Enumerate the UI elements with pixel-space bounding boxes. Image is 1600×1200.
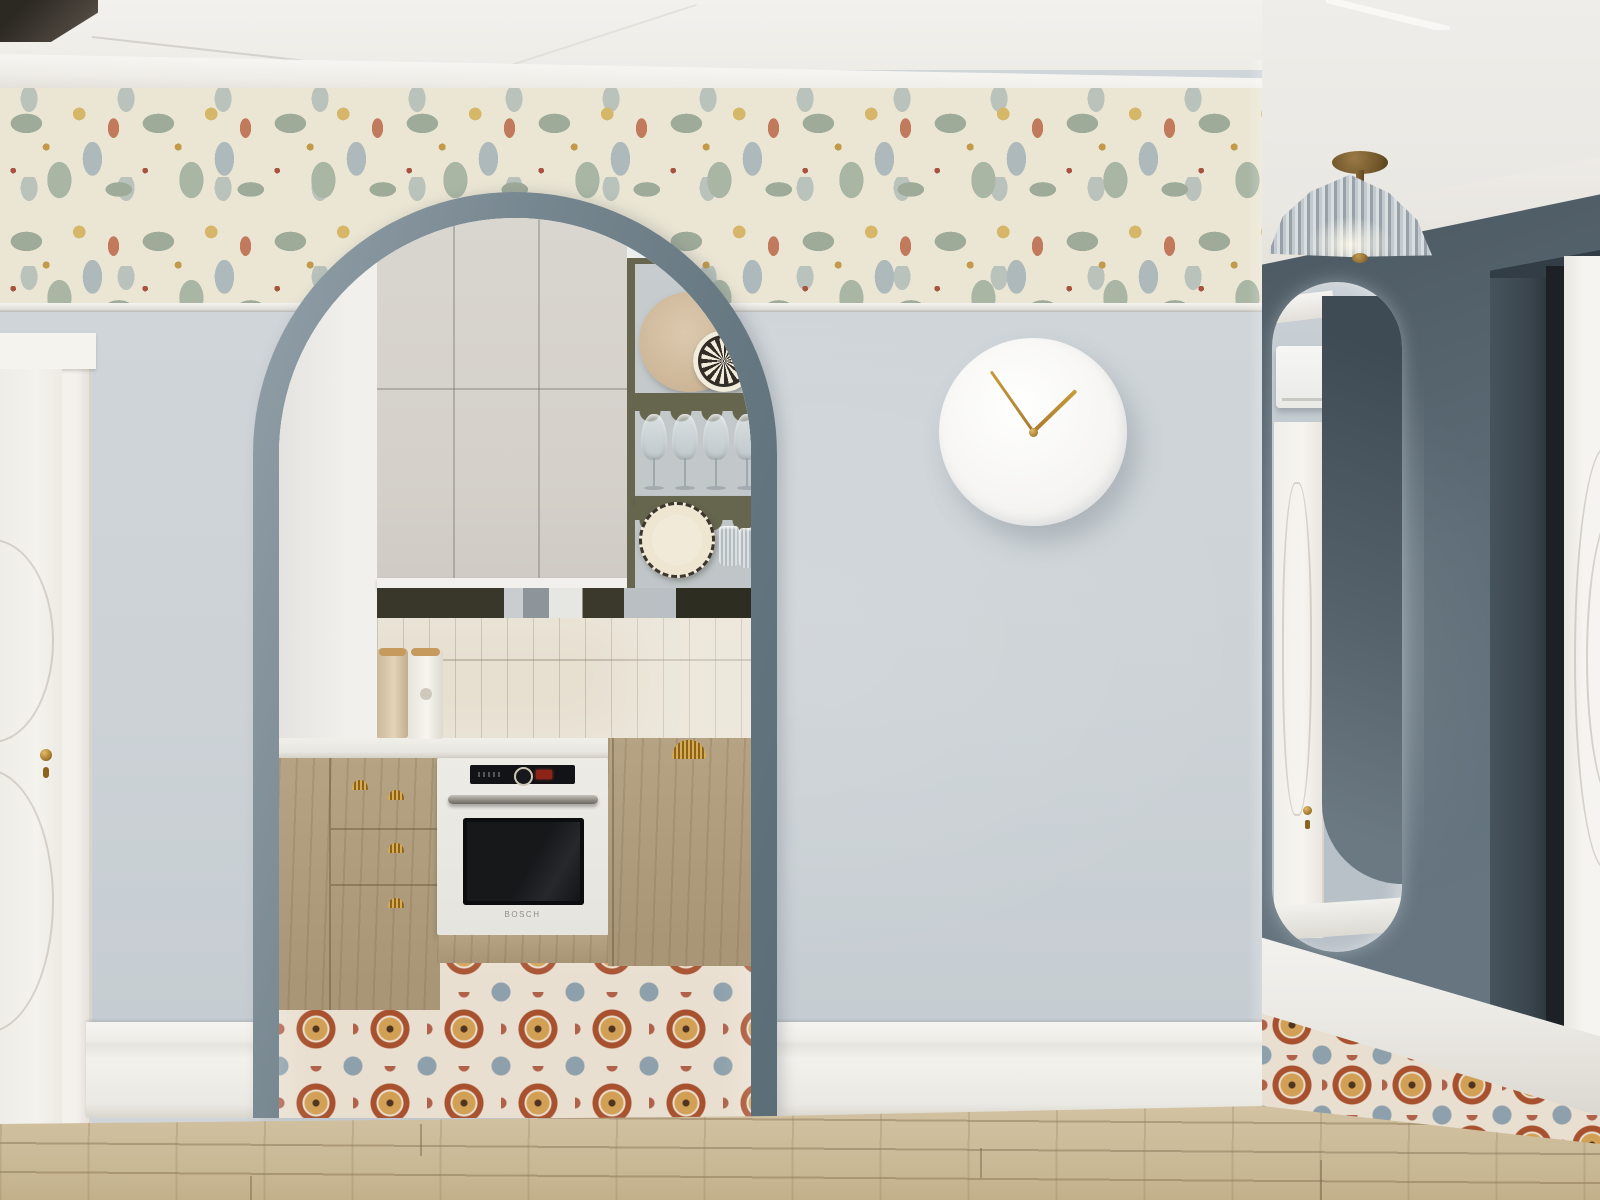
mirror-door-keyhole: [1305, 820, 1310, 829]
oven: BOSCH: [437, 758, 608, 935]
wall-clock: [939, 338, 1127, 526]
oven-handle: [448, 795, 598, 804]
oven-plinth: [437, 935, 608, 963]
oven-brand-logo: BOSCH: [437, 910, 608, 919]
glass-tumbler: [739, 528, 751, 568]
cabinet-seam: [377, 388, 627, 390]
open-shelf-unit: [627, 258, 751, 594]
drawer-seam: [331, 884, 440, 886]
baseboard-right: [772, 1022, 1264, 1118]
door-keyhole: [43, 767, 49, 778]
door-recess-jamb: [1490, 278, 1546, 1040]
lower-cabinets-right: [608, 738, 751, 966]
cabinet-seam: [453, 218, 455, 588]
mirror-niche-strip: [377, 588, 751, 618]
wine-glass-row: [643, 414, 751, 494]
wine-glass: [670, 414, 700, 492]
drawer-seam: [331, 828, 440, 830]
door-panel-groove: [0, 539, 54, 743]
lower-cabinets-left: [279, 758, 440, 1010]
oven-display: [536, 770, 552, 779]
kitchen-side-wall: [279, 218, 377, 740]
oven-door-glass: [463, 818, 584, 905]
botanical-plate: [639, 502, 715, 578]
drawer-pull: [388, 843, 404, 853]
plank-joint: [420, 1124, 422, 1156]
mirror-reflection-door: [1274, 422, 1322, 938]
oven-dial: [514, 767, 533, 786]
plank-joint: [980, 1148, 982, 1178]
wine-glass: [639, 414, 669, 492]
arch-trim: BOSCH: [253, 192, 777, 1118]
canister-beige: [377, 648, 408, 738]
cabinet-underside: [377, 578, 627, 588]
mirror-reflection-dark-wall: [1322, 296, 1402, 884]
plank-joint: [250, 1176, 252, 1200]
oven-buttons: [478, 772, 500, 777]
capsule-mirror: [1272, 282, 1402, 952]
cabinet-fan-pull: [672, 740, 706, 759]
black-door-frame: [1546, 266, 1564, 1078]
canister-lid: [379, 648, 406, 656]
door-panel-groove: [0, 769, 54, 1033]
left-door-head-casing: [0, 333, 96, 369]
clock-hour-hand: [1032, 389, 1078, 433]
right-white-door: [1564, 256, 1600, 1140]
mirror-door-knob: [1303, 806, 1312, 815]
mirror-door-groove: [1282, 482, 1312, 816]
canister-lid: [411, 648, 440, 656]
drawer-pull: [352, 780, 368, 790]
plank-joint: [1320, 1160, 1322, 1200]
clock-minute-hand: [989, 371, 1034, 433]
cabinet-seam: [538, 218, 540, 588]
shelf-board: [635, 496, 751, 504]
patterned-plate: [693, 330, 751, 392]
interior-render: BOSCH: [0, 0, 1600, 1200]
cabinet-seam: [612, 738, 614, 966]
glass-tumbler: [719, 526, 739, 566]
wine-glass: [701, 414, 731, 492]
drawer-pull: [388, 790, 404, 800]
canister-badge: [420, 688, 432, 700]
clock-center-cap: [1029, 428, 1038, 437]
kitchen-through-arch: BOSCH: [279, 218, 751, 1118]
upper-cabinets: [377, 218, 627, 588]
shelf-valance: [635, 393, 751, 411]
canister-white: [408, 648, 443, 739]
drawer-pull: [388, 898, 404, 908]
baseboard-left: [86, 1022, 258, 1118]
door-knob: [40, 749, 52, 761]
lamp-finial: [1352, 253, 1368, 263]
oven-control-panel: [470, 765, 575, 784]
wine-glass: [732, 414, 751, 492]
left-door: [0, 369, 62, 1143]
